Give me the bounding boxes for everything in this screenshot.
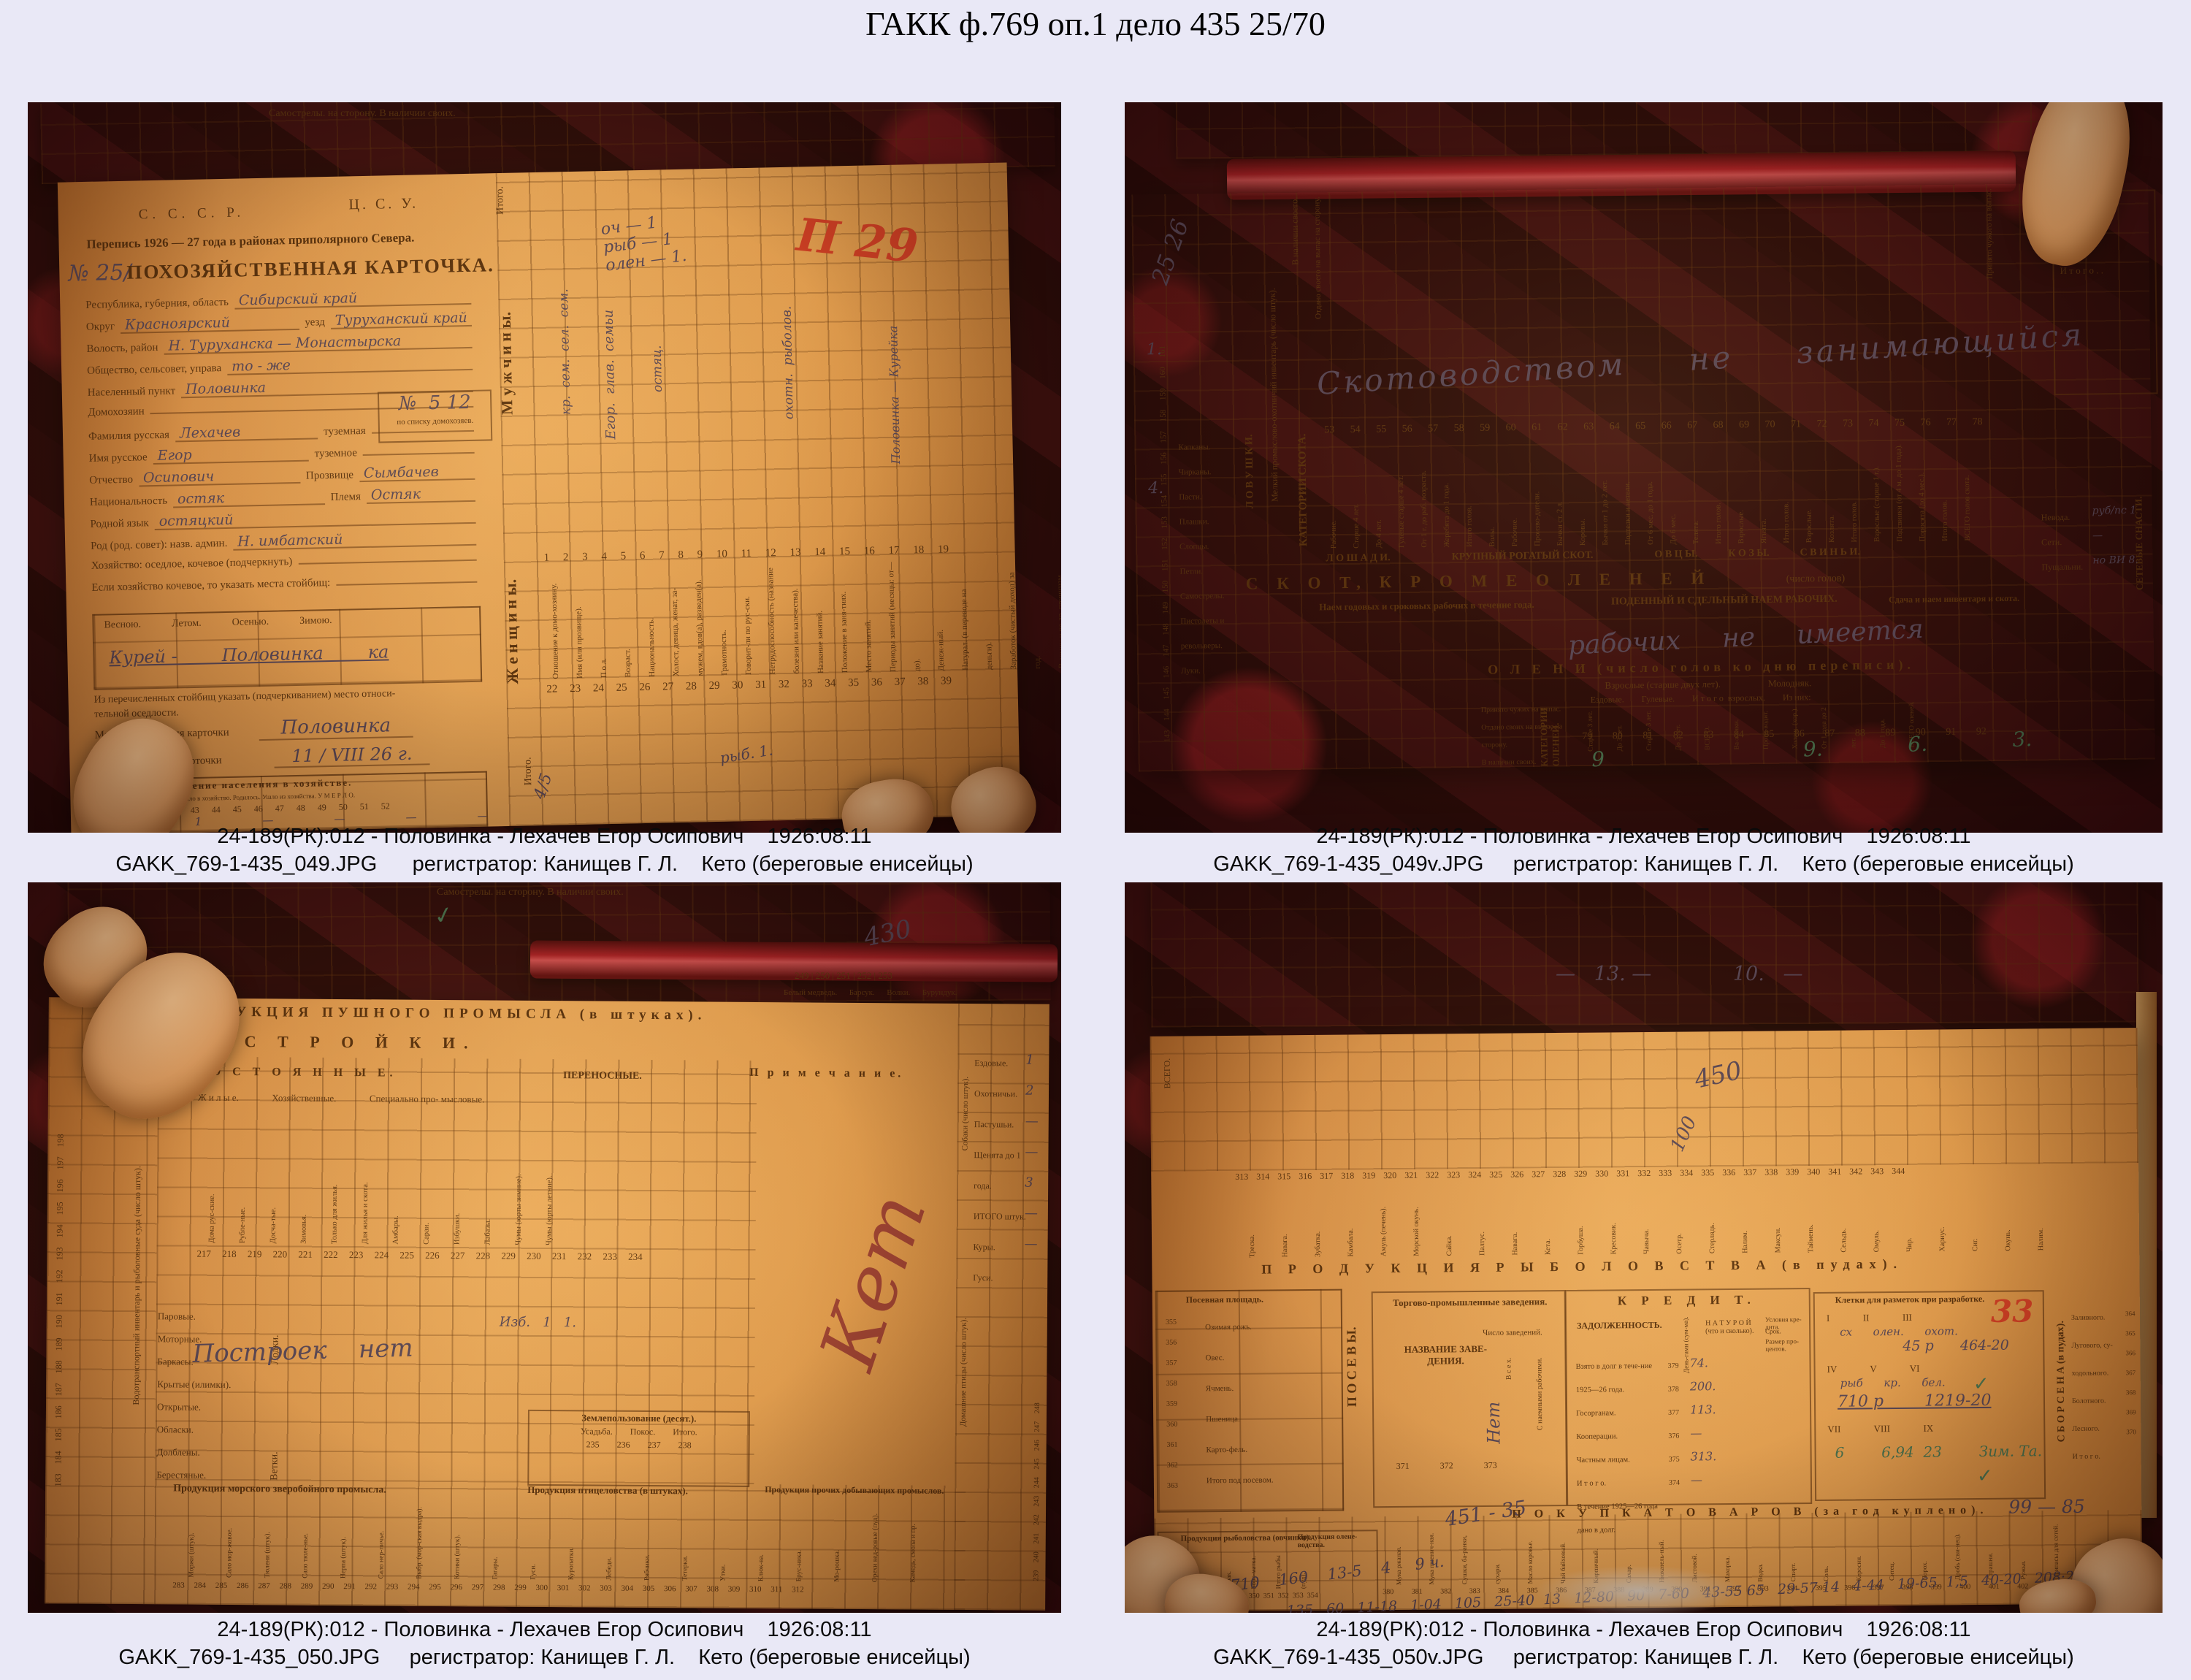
cells-row2: IV V VI [1827,1363,1920,1375]
caption-050v-line1: 24-189(РК):012 - Половинка - Лехачев Его… [1125,1617,2163,1642]
field-value2: Сымбачев [359,465,475,482]
cattle-categories-label: КАТЕГОРИИ СКОТА. [1296,434,1310,547]
building-column-heads: Дома рус-ские. Рубле-ные. Досча-тые. Зим… [197,1108,607,1246]
field-label: Имя русское [89,451,148,465]
field-label: Республика, губерния, область [85,297,229,312]
green-check-2: ✓ [1977,1465,1993,1487]
land-use-cols: Усадьба. Покос. Итого. [581,1426,697,1437]
hw-no-buildings-note: Построек нет [192,1333,413,1368]
small-hunting-inventory-label: Мелкий промыслово-охотничий инвентарь (ч… [1267,288,1281,502]
header-sssr: С. С. С. Р. [139,205,245,223]
rotated-column-heads: Отношение к домо-хозяину. Имя (или прозв… [542,559,1004,679]
field-value: Н. имбатский [233,530,476,551]
previous-page-edge [1150,882,2138,1028]
field-label: Общество, сельсовет, управа [87,362,221,378]
hw-top-values: — 13. — 10. — [1556,963,1803,985]
place-value: Половинка [259,714,413,741]
credit-nature-head: Н А Т У Р О Й (что и сколько). [1705,1319,1764,1336]
hw-entry-place: Половинка — Курейка [886,326,903,465]
credit-pct-head: Размер про-центов. [1765,1337,1809,1353]
hw-traps-value-1: 1. [1147,340,1162,359]
water-transport-title: Водотранспортный инвентарь и рыболовные … [131,1166,143,1405]
seasons-headers: Весною. Летом. Осенью. Зимою. [104,615,332,632]
field-value: Осипович [139,468,300,487]
field-value: Егор [153,446,308,465]
credit-money-head: День-гами (сум-ма). [1682,1316,1690,1373]
field-label: Национальность [90,495,167,509]
trade-all-head: В с е х. [1504,1358,1513,1381]
field-label2: Племя [330,491,361,504]
field-value [298,560,476,565]
credit-title: К Р Е Д И Т. [1618,1293,1756,1309]
top-row-numbers: 249 | 250 | 251 | 252 | 253 [795,970,892,982]
hw-red-33: 33 [1991,1293,2034,1329]
field-label: Отчество [89,474,133,487]
hw-cells-row2: рыб кр. бел. [1840,1375,1946,1389]
hw-trade-none: Нет [1483,1402,1504,1444]
credit-term-head: Срок. [1765,1327,1781,1335]
rot-women-label: Ж е н щ и н ы. [501,579,522,684]
photo-card2-back[interactable]: — 13. — 10. — 450 100 ВСЕГО. 313 314 315… [1125,882,2163,1613]
hw-no-workers-note: рабочих не имеется [1567,614,1924,661]
dogs-band: Собаки (число штук). [960,1077,970,1150]
household-number-label: по списку домохозяев. [397,416,473,427]
poultry-band: Домашние птицы (число штук). [959,1318,968,1427]
sowing-numbers: 355 356 357 358 359 360 361 362 363 [1166,1313,1178,1497]
left-column-numbers: 183 184 185 186 187 188 189 190 191 192 … [53,1172,66,1486]
card-number-handwritten: № 25/ [68,260,131,287]
top-row-animals: Белый медведь. Барсук. Волки. Бурундук. [784,988,957,997]
date-value: 11 / VIII 26 г. [274,743,430,768]
vetki-group-label: Ветки. [269,1451,280,1481]
table-grid [496,162,1021,825]
hw-portable-values: Изб. 1 1. [500,1315,576,1331]
olen-row-labels: Принято чужих на выпас. Отдано своих на … [1481,700,1577,772]
hw-entry-name: Егор. глав. семьи [601,310,619,440]
hay-numbers: 364 365 366 367 368 369 370 [2125,1304,2136,1442]
household-number-box: № 5 12 по списку домохозяев. [378,389,492,443]
seasons-values: Курей - Половинка ка [109,641,389,668]
credit-box: К Р Е Д И Т. ЗАДОЛЖЕННОСТЬ. День-гами (с… [1565,1288,1813,1506]
caption-049v-line1: 24-189(РК):012 - Половинка - Лехачев Его… [1125,824,2163,849]
hw-99-85: 99 — 85 [2008,1496,2085,1518]
hw-entry-nationality: остяц. [650,345,665,392]
olen-heads: Взрослые (старше двух лет). Молодняк. [1605,677,1811,691]
form-fields: Республика, губерния, областьСибирский к… [85,289,478,604]
hw-cells-row1: сх олен. охот. [1840,1324,1958,1338]
avail-own-label: В наличии своего. [1289,197,1301,265]
building-groups: Ж и л ы е. Хозяйственные. Специально про… [198,1092,485,1106]
census-line: Перепись 1926 — 27 года в районах припол… [86,230,414,251]
document-page-back: 25 26 В наличии своего. Отдано своего на… [1131,183,2155,772]
hw-net-gear-values: руб/пс 1 — но ВИ 8. [2092,498,2138,573]
light-blob [1534,1565,1745,1613]
photo-card2-front[interactable]: Самострелы. на сторону. В наличии своих.… [28,882,1061,1613]
net-gear-rows: Невода. Сети. Пущальни. [2041,505,2084,580]
sowing-title: Посевная площадь. [1186,1294,1263,1306]
animal-group-band: Л О Ш А Д И. КРУПНЫЙ РОГАТЫЙ СКОТ. О В Ц… [1326,546,1860,565]
caption-050v-line2: GAKK_769-1-435_050v.JPG регистратор: Кан… [1125,1645,2163,1670]
rot-men-label: М у ж ч и н ы. [496,312,517,416]
rot-itogo-bottom: Итого. [522,757,535,785]
document-page2-back: 450 100 ВСЕГО. 313 314 315 316 317 318 3… [1150,1028,2143,1612]
hw-entry-relation: кр. сем. сел. сем. [557,289,574,415]
field-label2: туземная [324,425,366,438]
field-value: остяк [173,489,325,508]
vsego-label: ВСЕГО. [1162,1058,1173,1089]
land-use-box: Землепользование (десят.). Усадьба. Поко… [527,1410,750,1487]
seasons-table: Весною. Летом. Осенью. Зимою. Курей - По… [92,606,482,690]
field-value [336,581,477,586]
page-title: ГАКК ф.769 оп.1 дело 435 25/70 [0,4,2191,43]
field-label: Волость, район [86,342,158,356]
hired-workers-title: Наем годовых и сроковых рабочих в течени… [1319,599,1534,614]
hw-dogs-values: 1 2 — — 3 — — [1024,1045,1039,1260]
fish-production-title: Продукция рыболовства (овчинки). [1181,1533,1311,1543]
credit-debt-head: ЗАДОЛЖЕННОСТЬ. [1577,1320,1662,1332]
green-check-1: ✓ [1973,1372,1989,1395]
hw-no-cattle-note: Скотоводством не занимающийся [1316,316,2086,402]
land-use-title: Землепользование (десят.). [581,1412,696,1424]
note-subband: П р и м е ч а н и е. [749,1066,903,1080]
sowing-area-box: Посевная площадь. Озимая рожь. Овес. Ячм… [1155,1289,1345,1513]
fur-production-band: ПРОДУКЦИЯ ПУШНОГО ПРОМЫСЛА (в штуках). [177,1004,707,1023]
trade-box: Торгово-промышленные заведения. НАЗВАНИЕ… [1372,1290,1568,1508]
field-value2: Остяк [367,486,475,504]
hw-cells-sums1: 45 р 464-20 [1903,1337,2009,1354]
skot-band-subtitle: (число голов) [1786,573,1846,586]
trade-numbers: 371 372 373 [1396,1460,1497,1472]
hay-band: С Б О Р С Е Н А (в пудах). [2055,1321,2068,1443]
hw-cells-row3: 6 6,94 23 Зим. Та. [1835,1442,2042,1461]
table-grid-top [1150,1028,2139,1172]
taken-in-label: Принято чужого на выпас. [1984,188,1995,279]
caption-050-line2: GAKK_769-1-435_050.JPG регистратор: Кани… [28,1645,1061,1670]
hay-row-labels: Заливного. Лугового, су-ходольного. Боло… [2071,1304,2131,1471]
fishing-production-band: П Р О Д У К Ц И Я Р Ы Б О Л О В С Т В А … [1261,1256,1903,1278]
strip-labels: Самострелы. на сторону. В наличии своих. [437,887,624,898]
sea-hunting-band: Продукция морского зверобойного промысла… [173,1483,386,1496]
field-label: Округ [86,321,115,334]
caption-050-line1: 24-189(РК):012 - Половинка - Лехачев Его… [28,1617,1061,1642]
field-value2 [363,452,475,456]
trade-count-head: Число заведений. [1483,1328,1542,1337]
trade-name-head: НАЗВАНИЕ ЗАВЕ- ДЕНИЯ. [1391,1343,1500,1367]
hw-traps-value-4: 4. [1148,479,1163,497]
sowing-crop-labels: Озимая рожь. Овес. Ячмень. Пшеница. Карт… [1205,1311,1274,1496]
credit-row-numbers: 379 378 377 376 375 374 [1667,1355,1680,1495]
photo-card-back[interactable]: 25 26 В наличии своего. Отдано своего на… [1125,102,2163,833]
archive-scan-page: { "page": {"title": "ГАКК ф.769 оп.1 дел… [0,0,2191,1680]
livestock-column-heads: Рабочие. Старше 4 лет. До 4 лет. Гулевые… [1321,432,1973,549]
hw-entry-occupation: охотн. рыболов. [780,306,797,420]
field-value: то - же [227,355,473,375]
field-label2: Прозвище [306,469,353,482]
bird-catching-band: Продукция птицеловства (в штуках). [527,1484,688,1497]
hw-page-numbers: 25 26 [1146,215,1194,288]
card-title: ПОХОЗЯЙСТВЕННАЯ КАРТОЧКА. [126,253,494,284]
field-value: Красноярский [121,315,299,334]
trade-hired-head: С наемными рабочими. [1535,1357,1544,1430]
field-label2: уезд [305,316,325,329]
posev-vertical-band: П О С Е В Ы. [1344,1326,1360,1407]
land-use-numbers: 235 236 237 238 [586,1439,692,1450]
hw-credit-values: 74. 200. 113. — 313. — [1689,1351,1716,1492]
caption-049-line2: GAKK_769-1-435_049.JPG регистратор: Кани… [28,852,1061,877]
field-value2: Туруханский край [331,311,472,329]
cells-row1: I II III [1827,1312,1912,1324]
document-page-front: С. С. С. Р. Ц. С. У. Перепись 1926 — 27 … [58,162,1020,833]
olen-band: О Л Е Н И (число голов ко дню переписи). [1488,657,1915,677]
reindeer-production-title: Продукция олене- водства. [1298,1532,1371,1549]
portable-subband: ПЕРЕНОСНЫЕ. [563,1070,642,1083]
strip-labels: Самострелы. на сторону. В наличии своих. [269,108,456,120]
field-value: Лехачев [175,424,318,442]
inventory-rent-title: Сдача и наем инвентаря и скота. [1889,593,2019,606]
red-book-spine [530,940,1058,982]
field-label: Родной язык [90,517,149,531]
given-out-label: Отдано своего на выпас на сторону. [1312,196,1323,318]
hw-tally-marks: оч — 1 рыб — 1 олен — 1. [600,210,687,275]
field-value: Сибирский край [234,289,472,310]
photo-card-front[interactable]: Самострелы. на сторону. В наличии своих.… [28,102,1061,833]
day-labor-title: ПОДЕННЫЙ И СДЕЛЬНЫЙ НАЕМ РАБОЧИХ. [1611,594,1838,608]
field-label2: туземное [314,447,357,460]
rot-itogo-top: Итого. [494,186,507,215]
header-csu: Ц. С. У. [348,195,418,213]
field-label: Фамилия русская [88,429,169,443]
hw-ket-signature: Кет [803,1183,943,1380]
caption-049-line1: 24-189(РК):012 - Половинка - Лехачев Его… [28,824,1061,849]
field-label: Населенный пункт [88,385,176,400]
fish-column-labels: Треска. Навага. Зубатка. Камбала. Амуль … [1235,1180,2083,1258]
traps-labels: Капканы. Чирканы. Пасти. Плашки. Слопцы.… [1178,434,1261,683]
hw-cells-sums2: 710 р 1219-20 [1838,1391,1992,1411]
caption-049v-line2: GAKK_769-1-435_049v.JPG регистратор: Кан… [1125,852,2163,877]
bottom-column-heads: Моржи (штук). Сало мор-жовое. Тюлени (шт… [172,1500,962,1583]
skot-krome-olenei-band: С К О Т, К Р О М Е О Л Е Н Е Й [1246,569,1712,594]
cells-title: Клетки для разметок при разработке. [1835,1294,1985,1306]
other-production-band: Продукция прочих добывающих промыслов. [765,1484,944,1497]
trade-title: Торгово-промышленные заведения. [1386,1296,1554,1309]
cells-row3: VII VIII IX [1827,1423,1933,1435]
field-label: Род (род. совет): назв. админ. [91,538,227,553]
household-number: № 5 12 [398,392,471,415]
field-label: Домохозяин [88,405,145,419]
boat-type-labels: Паровые. Моторные. Баркасы. Крытые (илим… [156,1305,267,1486]
